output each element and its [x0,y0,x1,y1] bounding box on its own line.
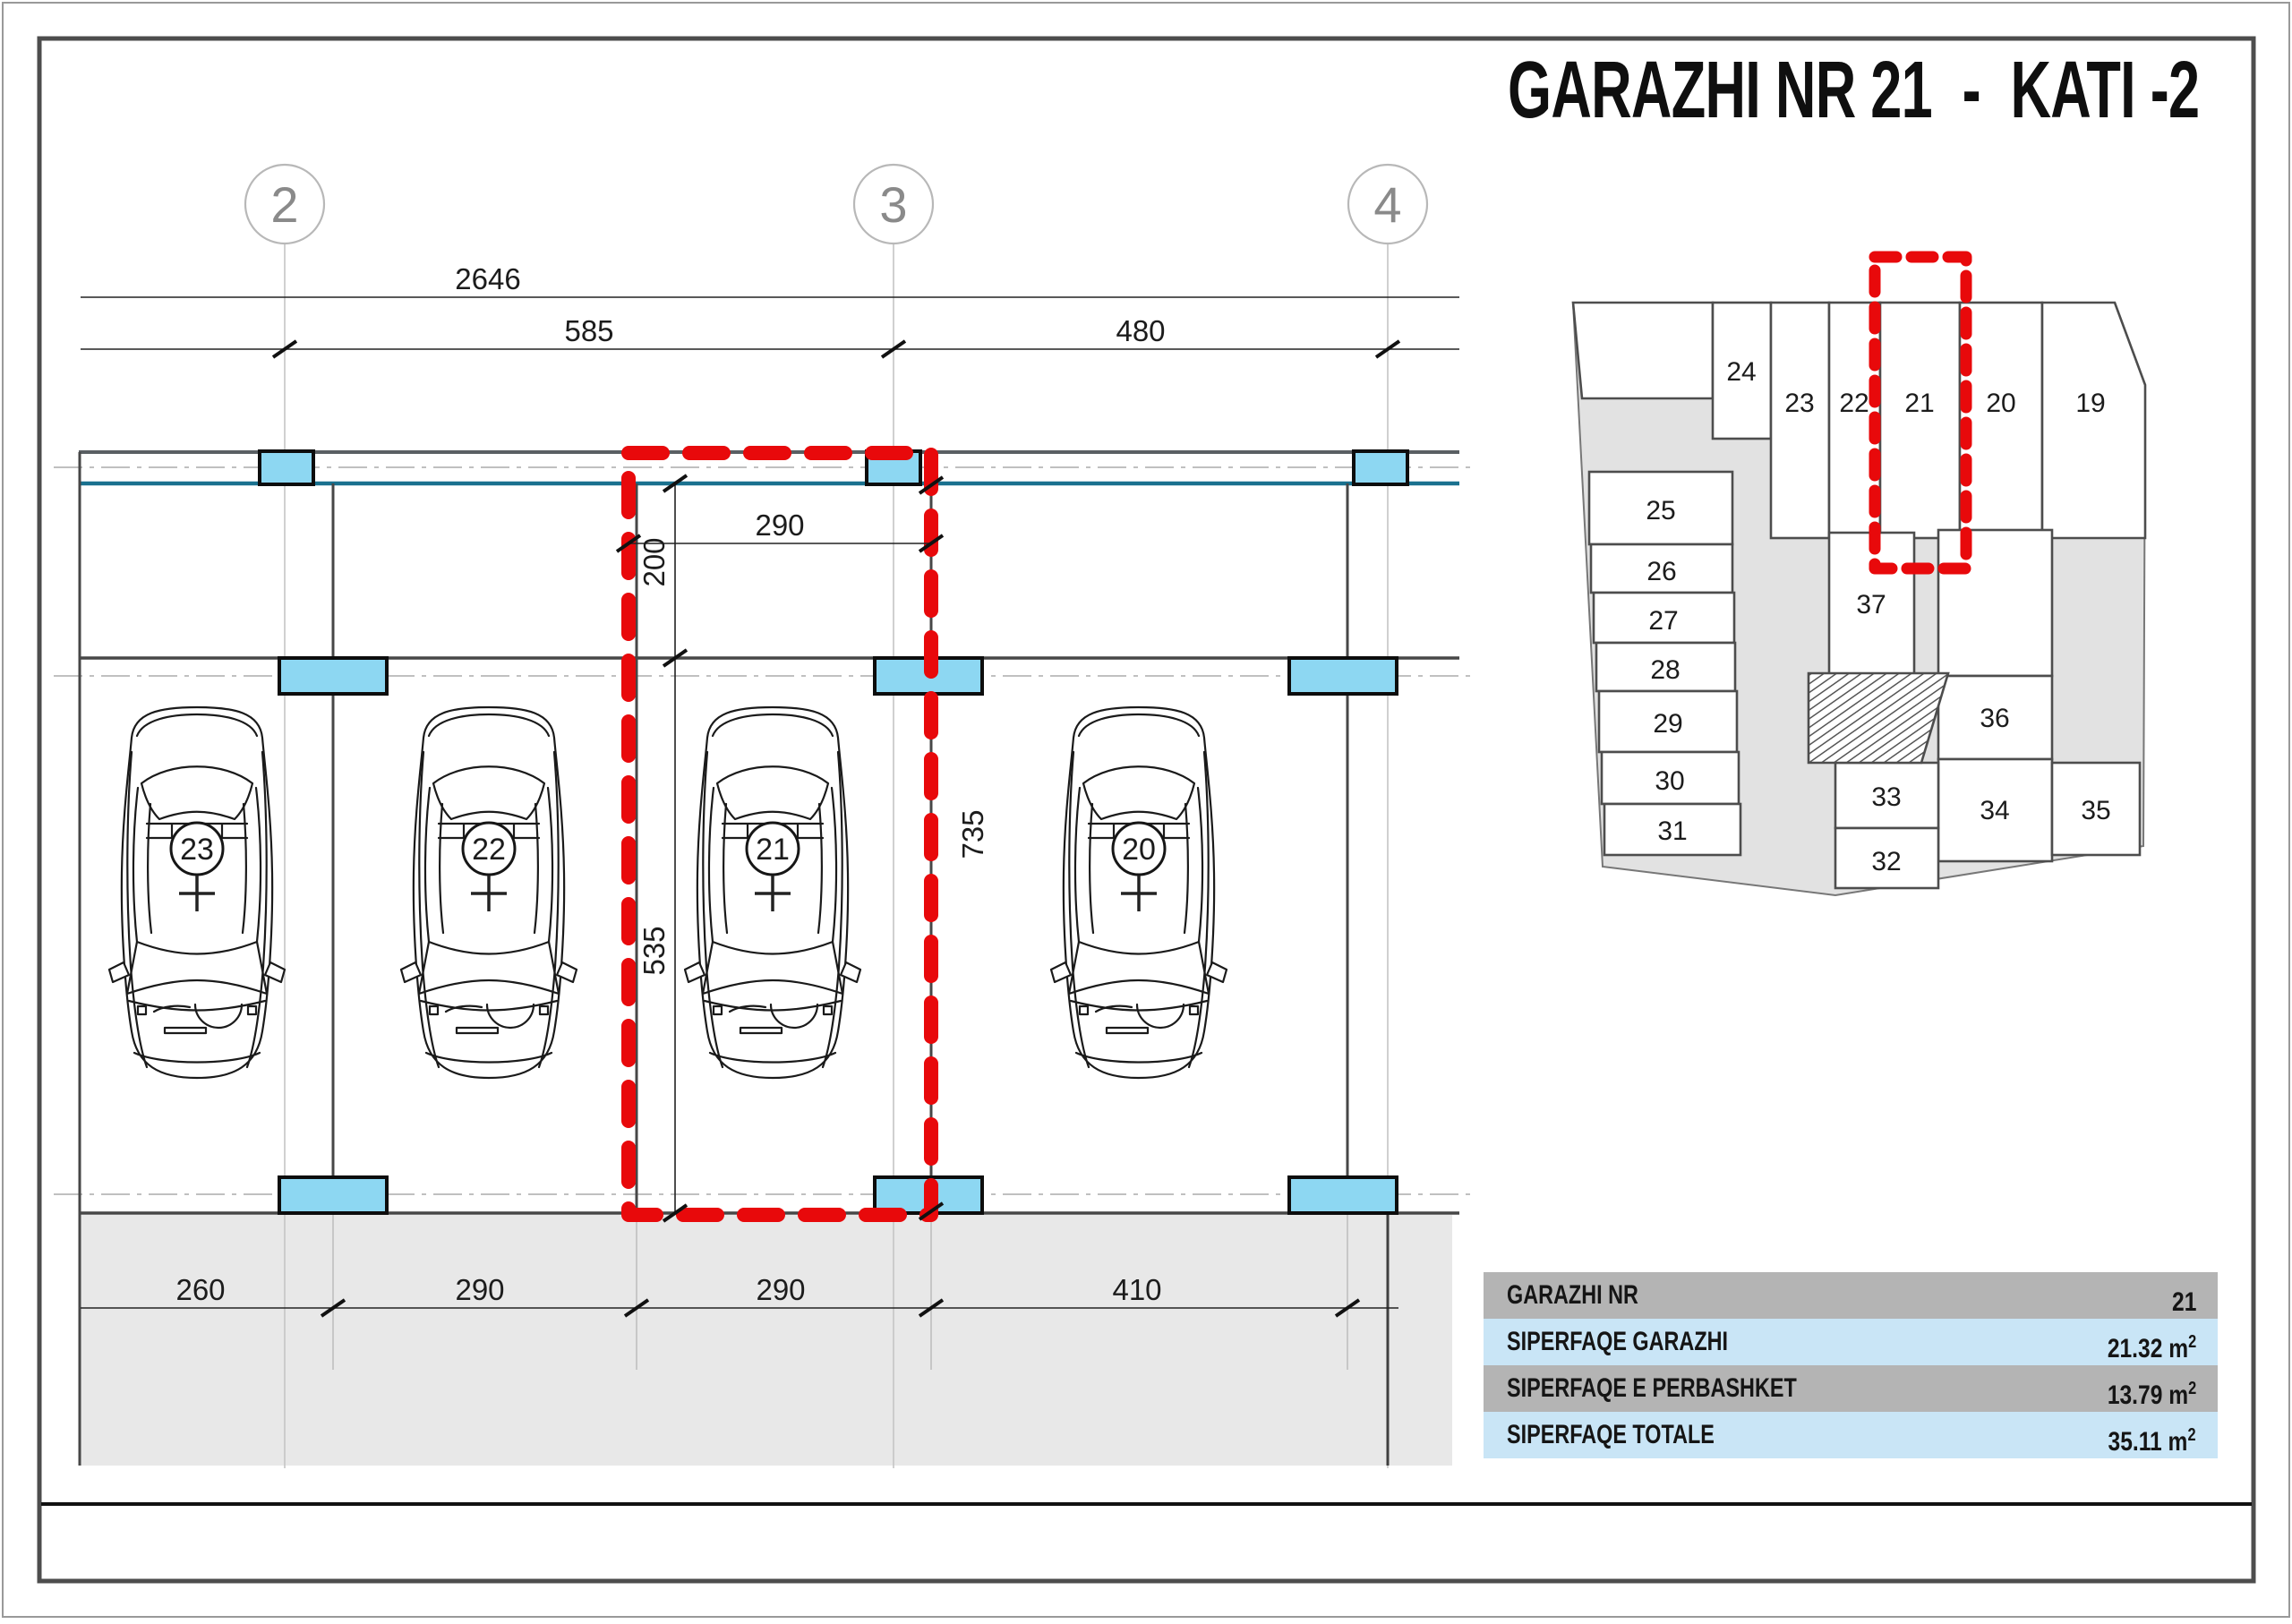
key-label-35: 35 [2081,796,2110,825]
driveway-area [81,1215,1452,1466]
dim-depth-lower: 535 [637,926,671,975]
key-label-26: 26 [1646,557,1676,586]
key-label-30: 30 [1655,766,1684,796]
key-label-24: 24 [1726,357,1756,387]
cell-20 [1960,303,2042,538]
key-label-23: 23 [1784,389,1814,418]
column [279,1177,387,1213]
key-label-29: 29 [1653,709,1682,739]
grid-bubble-label: 4 [1373,176,1401,233]
table-row-label: SIPERFAQE GARAZHI [1507,1319,1728,1365]
dim-bottom-2: 290 [756,1273,805,1306]
dimension-labels: 2646 585 480 290 200 535 735 260 290 290… [175,262,1165,1306]
car-space-20: 20 [1051,707,1227,1078]
column [1289,1177,1397,1213]
grid-bubble-label: 2 [270,176,298,233]
dim-right-span: 480 [1116,314,1165,347]
cell-21 [1880,303,1960,538]
key-label-19: 19 [2075,389,2105,418]
key-label-36: 36 [1980,704,2009,733]
table-row-value: 35.11 m2 [2108,1412,2196,1466]
space-number: 20 [1122,833,1156,867]
car-space-21: 21 [685,707,860,1078]
column [279,658,387,694]
key-label-37: 37 [1856,590,1886,620]
key-label-27: 27 [1648,606,1678,636]
table-row-value: 13.79 m2 [2108,1365,2196,1419]
car-space-23: 23 [109,707,285,1078]
space-number: 21 [756,833,790,867]
cell-23 [1771,303,1829,538]
dim-garage-width: 290 [755,509,804,542]
grid-bubble-label: 3 [879,176,907,233]
key-label-28: 28 [1650,655,1680,685]
column [1354,451,1407,484]
dim-bottom-0: 260 [175,1273,225,1306]
key-label-21: 21 [1904,389,1934,418]
space-number: 23 [180,833,214,867]
key-label-22: 22 [1839,389,1869,418]
key-label-31: 31 [1657,816,1687,846]
dim-bottom-3: 410 [1112,1273,1161,1306]
table-row: SIPERFAQE E PERBASHKET 13.79 m2 [1484,1365,2218,1412]
column [1289,658,1397,694]
key-label-20: 20 [1986,389,2015,418]
cell-unlabeled [1573,303,1713,398]
key-label-25: 25 [1646,496,1675,526]
dim-depth-upper: 200 [637,537,671,586]
key-label-32: 32 [1871,847,1901,876]
dim-left-span: 585 [564,314,613,347]
column [260,451,313,484]
dim-overall: 2646 [455,262,520,295]
table-row-value: 21 [2172,1272,2196,1326]
grid-bubbles: 2 3 4 [245,165,1427,244]
key-label-34: 34 [1980,796,2009,825]
car-space-22: 22 [401,707,577,1078]
table-row-label: GARAZHI NR [1507,1272,1638,1319]
cell-19 [2042,303,2145,538]
key-label-33: 33 [1871,782,1901,812]
sheet: 23 22 21 20 2 3 4 [0,0,2292,1620]
dim-depth-total: 735 [956,809,989,859]
dim-bottom-1: 290 [455,1273,504,1306]
space-number: 22 [472,833,506,867]
table-row-label: SIPERFAQE E PERBASHKET [1507,1365,1797,1412]
table-row: GARAZHI NR 21 [1484,1272,2218,1319]
table-row: SIPERFAQE GARAZHI 21.32 m2 [1484,1319,2218,1365]
key-plan: 24 23 22 21 20 19 25 26 27 28 29 30 31 3… [1573,257,2145,895]
cell-unlabeled-right [1938,530,2052,676]
table-row-value: 21.32 m2 [2108,1319,2196,1372]
table-row: SIPERFAQE TOTALE 35.11 m2 [1484,1412,2218,1458]
table-row-label: SIPERFAQE TOTALE [1507,1412,1715,1458]
page-title: GARAZHI NR 21 - KATI -2 [1508,45,2199,137]
